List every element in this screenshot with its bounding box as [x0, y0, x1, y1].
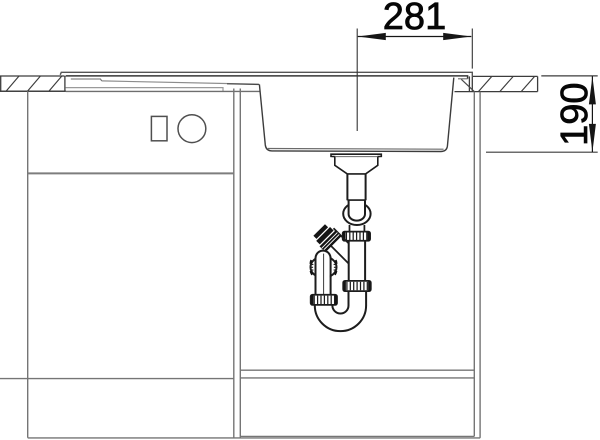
svg-text:281: 281 — [383, 0, 446, 38]
svg-text:190: 190 — [554, 82, 596, 145]
